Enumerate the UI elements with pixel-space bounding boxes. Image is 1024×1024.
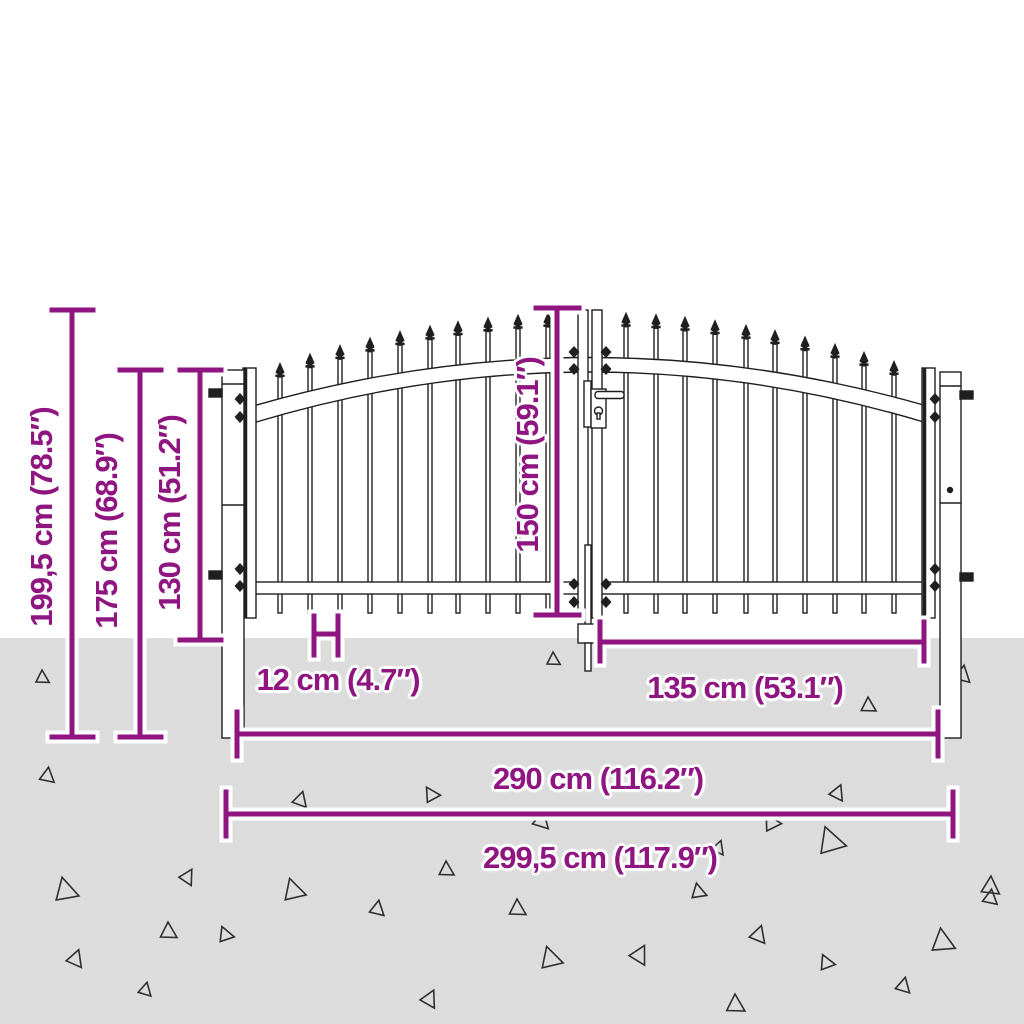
dim-label-door-height: 150 cm (59.1″)	[510, 357, 546, 553]
hinge-bolt-icon	[209, 571, 222, 579]
spear-finial-icon	[741, 324, 750, 339]
spear-finial-icon	[830, 343, 839, 358]
hinge-bolt-icon	[960, 573, 973, 581]
gravel-triangle	[420, 987, 442, 1008]
gravel-triangle	[816, 952, 835, 970]
gravel-triangle	[829, 782, 848, 801]
spear-finial-icon	[680, 316, 689, 331]
spear-finial-icon	[770, 329, 779, 344]
gravel-triangle	[161, 922, 178, 938]
gravel-triangle	[861, 697, 876, 711]
spear-finial-icon	[889, 360, 898, 375]
spear-finial-icon	[395, 330, 404, 345]
spear-finial-icon	[365, 337, 374, 352]
spear-finial-icon	[305, 353, 314, 368]
gravel-triangle	[52, 875, 79, 901]
gravel-triangle	[930, 927, 955, 951]
gravel-triangle	[439, 861, 454, 875]
gravel-triangle	[39, 766, 56, 782]
gravel-triangle	[814, 822, 847, 854]
gravel-triangle	[292, 789, 310, 807]
gravel-triangle	[537, 943, 563, 968]
dim-label-inner-width: 290 cm (116.2″)	[493, 761, 703, 797]
spear-finial-icon	[513, 314, 522, 329]
handle-icon	[595, 392, 624, 399]
center-stile-right-door	[592, 310, 602, 618]
dim-label-picket-gap: 12 cm (4.7″)	[256, 662, 419, 698]
lock-assembly	[584, 381, 624, 428]
keyhole-slot	[597, 413, 600, 419]
spear-finial-icon	[651, 313, 660, 328]
spear-finial-icon	[800, 336, 809, 351]
gravel-triangle	[895, 976, 913, 993]
gravel-triangle	[66, 947, 87, 968]
gravel-triangle	[421, 783, 441, 803]
spear-finial-icon	[453, 320, 462, 335]
gravel-triangles	[36, 652, 1001, 1011]
gravel-triangle	[369, 899, 386, 916]
gravel-triangle	[36, 670, 49, 682]
dim-label-total-width: 299,5 cm (117.9″)	[483, 840, 717, 876]
lock-plate	[584, 381, 591, 427]
gravel-triangle	[138, 981, 154, 996]
hinge-bolt-icon	[960, 391, 973, 399]
spear-finial-icon	[710, 319, 719, 334]
gravel-triangle	[510, 899, 527, 915]
gravel-triangle	[280, 875, 306, 900]
gate-dimension-diagram: 199,5 cm (78.5″) 175 cm (68.9″) 130 cm (…	[0, 0, 1024, 1024]
spear-finial-icon	[859, 351, 868, 366]
left-post	[209, 370, 244, 738]
gravel-triangle	[216, 924, 235, 942]
gravel-triangle	[179, 866, 199, 886]
dim-label-door-width: 135 cm (53.1″)	[647, 670, 843, 706]
spear-finial-icon	[425, 325, 434, 340]
spear-finial-icon	[335, 344, 344, 359]
gravel-triangle	[547, 652, 560, 664]
spear-finial-icon	[621, 312, 630, 327]
dim-label-post-height: 175 cm (68.9″)	[89, 433, 125, 629]
dim-label-fence-height: 130 cm (51.2″)	[152, 415, 188, 611]
spear-finial-icon	[483, 317, 492, 332]
post-bolt-icon	[948, 488, 953, 493]
gravel-triangle	[690, 882, 707, 898]
gravel-triangle	[629, 941, 653, 965]
right-post	[940, 372, 973, 738]
gravel-triangle	[727, 994, 745, 1011]
spear-finial-icon	[275, 362, 284, 377]
dim-label-total-height: 199,5 cm (78.5″)	[24, 407, 60, 626]
gravel-triangle	[749, 923, 770, 943]
hinge-bolt-icon	[209, 389, 222, 397]
